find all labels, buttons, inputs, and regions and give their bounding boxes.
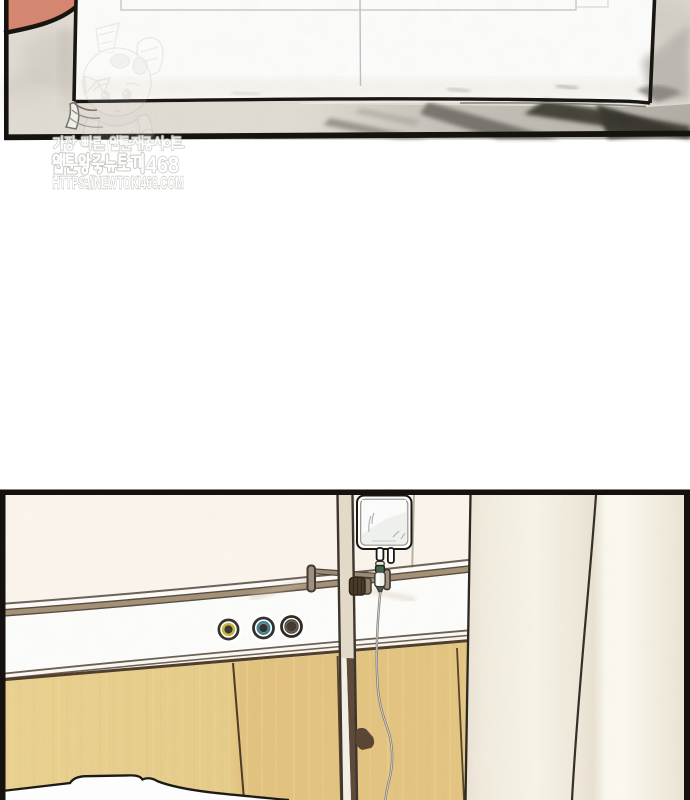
- svg-text:HTTPS://NEWTOKI468.COM: HTTPS://NEWTOKI468.COM: [53, 173, 184, 193]
